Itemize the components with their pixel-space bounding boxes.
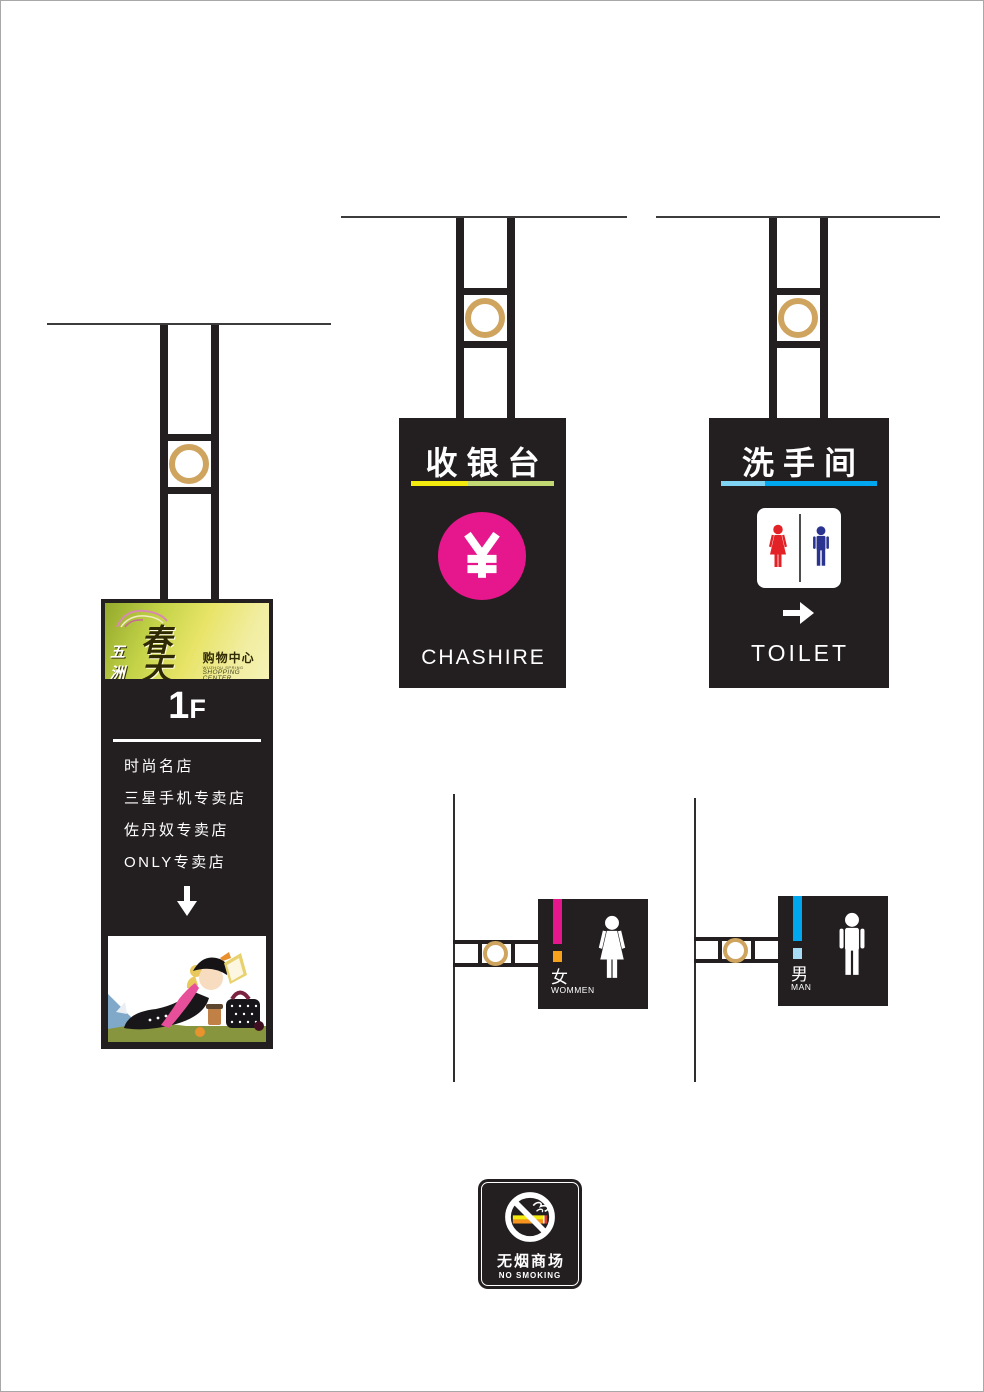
- mall-logo: 五洲 春天 购物中心 WUZHOU SPRING SHOPPING CENTER: [105, 603, 269, 679]
- cashier-sign: 收银台 CHASHIRE: [399, 418, 566, 688]
- restroom-sign: 洗手间 TOILET: [709, 418, 889, 688]
- hanger-crossbar: [160, 434, 219, 441]
- no-smoking-label-cn: 无烟商场: [478, 1250, 582, 1271]
- yen-icon: [438, 512, 526, 600]
- hanger-post: [769, 218, 777, 418]
- women-sign: 女 WOMMEN: [538, 899, 648, 1009]
- man-icon: [830, 909, 874, 985]
- brand-en: SHOPPING CENTER: [203, 670, 269, 679]
- store-list-item: 三星手机专卖店: [124, 783, 247, 815]
- directory-sign: 五洲 春天 购物中心 WUZHOU SPRING SHOPPING CENTER…: [101, 599, 273, 1049]
- tile-divider: [799, 514, 801, 581]
- floor-rule: [113, 739, 261, 742]
- arrow-right-icon: [709, 598, 889, 628]
- cashier-title: 收银台: [399, 438, 566, 484]
- ceiling-line-left: [47, 323, 331, 325]
- signage-design-sheet: 五洲 春天 购物中心 WUZHOU SPRING SHOPPING CENTER…: [0, 0, 984, 1392]
- store-list-item: 佐丹奴专卖店: [124, 815, 247, 847]
- hanger-post: [211, 325, 219, 599]
- hanger-crossbar: [456, 288, 515, 295]
- bracket-cellbar: [751, 937, 755, 963]
- bracket-cellbar: [478, 940, 482, 967]
- man-icon: [807, 517, 835, 579]
- hanger-post: [507, 218, 515, 418]
- floor-label: 1F: [101, 685, 273, 728]
- men-accent-bar: [793, 896, 802, 941]
- woman-icon: [763, 516, 793, 580]
- ceiling-line-middle: [341, 216, 627, 218]
- store-list-item: ONLY专卖店: [124, 847, 247, 879]
- gold-ring-icon: [465, 298, 505, 338]
- arrow-down-icon: [101, 884, 273, 920]
- hanger-post: [160, 325, 168, 599]
- restroom-title: 洗手间: [709, 438, 889, 484]
- hanger-crossbar: [769, 288, 828, 295]
- wall-line-women: [453, 794, 455, 1082]
- no-smoking-label-en: NO SMOKING: [478, 1271, 582, 1280]
- hanger-crossbar: [769, 341, 828, 348]
- fashion-illustration: [108, 936, 266, 1042]
- gold-ring-icon: [169, 444, 209, 484]
- ceiling-line-right: [656, 216, 940, 218]
- restroom-subtitle: TOILET: [709, 640, 889, 667]
- cashier-subtitle: CHASHIRE: [399, 646, 566, 670]
- store-list-item: 时尚名店: [124, 751, 247, 783]
- gold-ring-icon: [483, 941, 508, 966]
- women-label-en: WOMMEN: [551, 985, 595, 995]
- women-accent-square: [553, 951, 562, 962]
- men-label-en: MAN: [791, 982, 811, 992]
- store-list: 时尚名店 三星手机专卖店 佐丹奴专卖店 ONLY专卖店: [124, 751, 247, 879]
- hanger-crossbar: [456, 341, 515, 348]
- brand-cn-main: 春天: [141, 627, 201, 679]
- men-accent-square: [793, 948, 802, 959]
- no-smoking-sign: 无烟商场 NO SMOKING: [478, 1179, 582, 1289]
- bracket-cellbar: [511, 940, 515, 967]
- no-smoking-icon: [499, 1186, 561, 1248]
- hanger-crossbar: [160, 487, 219, 494]
- brand-cn-suffix: 购物中心: [203, 652, 269, 664]
- hanger-post: [456, 218, 464, 418]
- bracket-cellbar: [718, 937, 722, 963]
- restroom-accent-line: [721, 481, 877, 486]
- gold-ring-icon: [723, 938, 748, 963]
- gold-ring-icon: [778, 298, 818, 338]
- woman-icon: [590, 912, 634, 988]
- restroom-pictogram-tile: [757, 508, 841, 588]
- men-sign: 男 MAN: [778, 896, 888, 1006]
- hanger-post: [820, 218, 828, 418]
- women-accent-bar: [553, 899, 562, 944]
- cashier-accent-line: [411, 481, 554, 486]
- brand-cn-prefix: 五洲: [110, 641, 141, 679]
